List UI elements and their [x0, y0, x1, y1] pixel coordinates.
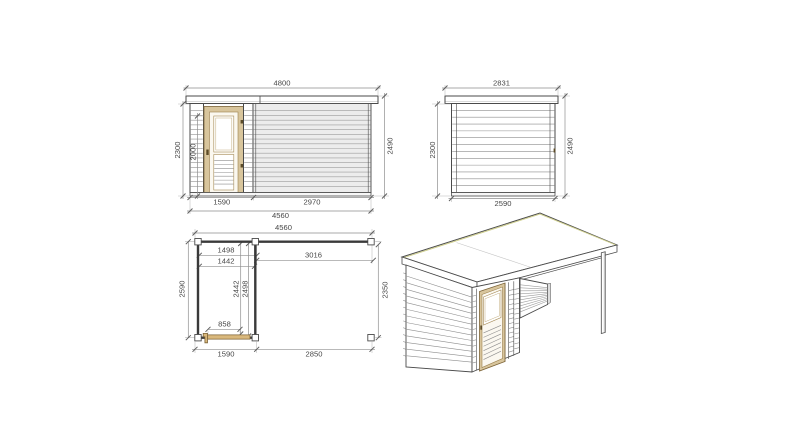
- dim-plan-cabin-width: 1590: [218, 350, 235, 359]
- dim-front-door-height: 2000: [189, 144, 198, 161]
- dim-plan-interior-depth-a: 2442: [232, 281, 241, 298]
- dim-front-overall-width: 4560: [272, 211, 289, 220]
- drawing-canvas: 4800 2490 2300 2000 1590 2970 4560 2831 …: [0, 0, 794, 446]
- front-screen-wall: [253, 104, 371, 193]
- dim-plan-interior-width-b: 1442: [218, 257, 235, 266]
- front-roof: [186, 96, 378, 104]
- iso-canopy-post: [601, 252, 605, 334]
- plan-door-leaf: [208, 335, 251, 339]
- dim-front-cabin-width: 1590: [213, 198, 230, 207]
- dim-front-roof-width: 4800: [274, 79, 291, 88]
- front-door-hinge-bottom: [241, 164, 243, 168]
- dim-plan-canopy-width: 2850: [306, 350, 323, 359]
- side-latch-mark: [554, 149, 556, 153]
- iso-screen-side: [548, 283, 551, 304]
- front-door-hinge-top: [241, 120, 243, 124]
- dim-plan-overall-width: 4560: [275, 223, 292, 232]
- front-door-window: [214, 116, 234, 152]
- dim-plan-interior-depth-b: 2498: [240, 281, 249, 298]
- dim-plan-door-opening: 858: [218, 320, 231, 329]
- plan-post-top-middle: [252, 239, 258, 245]
- plan-post-top-right: [368, 239, 374, 245]
- plan-post-top-left: [195, 239, 201, 245]
- dim-plan-canopy-span: 3016: [305, 251, 322, 260]
- side-elevation-view: 2831 2300 2490 2590: [428, 79, 575, 209]
- dim-side-roof-depth: 2831: [493, 79, 510, 88]
- side-wall: [452, 104, 556, 193]
- plan-post-bottom-middle: [252, 335, 258, 341]
- side-roof: [445, 96, 558, 104]
- floor-plan-view: 4560 1498 1442 3016 2590 2442 2498 2350 …: [178, 223, 390, 359]
- front-door-handle: [206, 150, 208, 156]
- front-elevation-view: 4800 2490 2300 2000 1590 2970 4560: [173, 79, 395, 221]
- dim-front-total-height: 2490: [386, 138, 395, 155]
- front-right-log-strip: [244, 104, 254, 193]
- dim-plan-canopy-depth: 2350: [381, 282, 390, 299]
- plan-post-bottom-right: [368, 335, 374, 341]
- dim-side-wall-depth: 2590: [495, 199, 512, 208]
- side-base: [452, 193, 556, 197]
- iso-screen-wall: [520, 279, 548, 319]
- iso-door-handle: [480, 326, 482, 330]
- plan-post-bottom-left: [195, 335, 201, 341]
- dim-side-wall-height: 2300: [428, 142, 437, 159]
- dim-side-total-height: 2490: [566, 138, 575, 155]
- perspective-view: [402, 213, 617, 372]
- dim-front-screen-width: 2970: [304, 198, 321, 207]
- iso-left-corner-logs: [403, 273, 405, 356]
- front-base: [190, 193, 371, 197]
- dim-front-wall-height: 2300: [173, 142, 182, 159]
- drawing-sheet: 4800 2490 2300 2000 1590 2970 4560 2831 …: [0, 0, 794, 446]
- dim-plan-overall-depth: 2590: [178, 281, 187, 298]
- dim-plan-interior-width-a: 1498: [218, 246, 235, 255]
